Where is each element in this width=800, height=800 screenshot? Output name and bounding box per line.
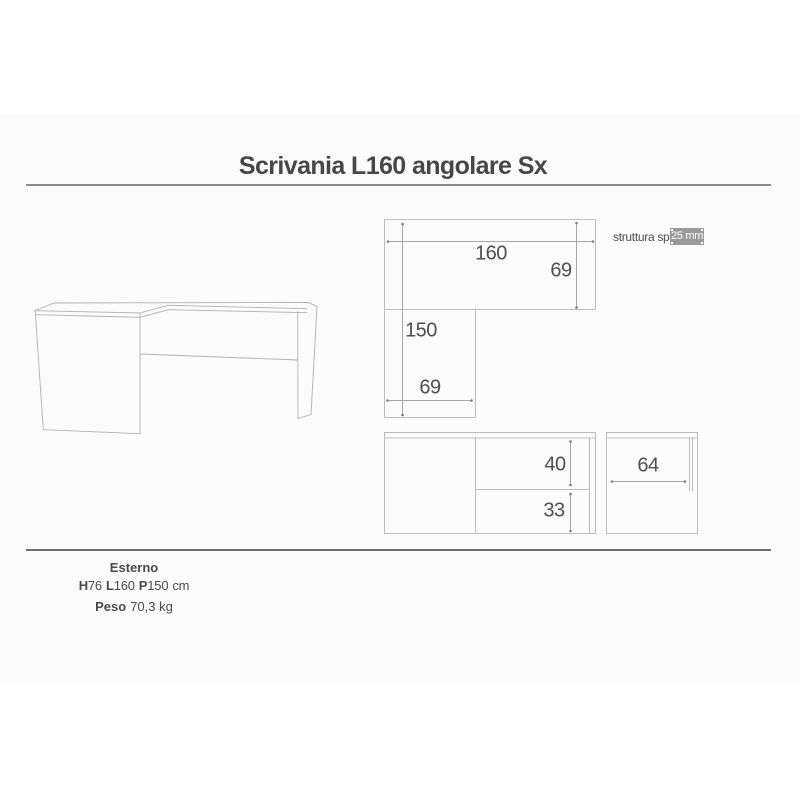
dim-label-return-width: 69: [419, 377, 440, 400]
structure-thickness-value-box: 25 mm: [670, 228, 704, 245]
specs-heading: Esterno: [34, 560, 234, 575]
specs-block: Esterno H76L160P150cm Peso70,3 kg: [34, 560, 234, 614]
weight-label: Peso: [95, 599, 126, 614]
weight-value: 70,3 kg: [130, 599, 173, 614]
side-view-drawing: [607, 433, 698, 534]
dim-label-side-depth: 64: [637, 455, 658, 478]
dim-label-front-lower: 33: [543, 500, 564, 523]
dim-label-return-length: 150: [405, 320, 437, 343]
technical-drawings: [0, 0, 800, 800]
desk-3d-drawing: [35, 303, 317, 434]
external-dimensions-line: H76L160P150cm: [34, 578, 234, 593]
length-label: L: [106, 578, 114, 593]
size-unit: cm: [172, 578, 189, 593]
dim-label-front-upper: 40: [544, 454, 565, 477]
dim-label-plan-depth: 69: [550, 260, 571, 283]
weight-line: Peso70,3 kg: [34, 599, 234, 614]
modesty-rail-line: [140, 354, 298, 360]
product-sheet-page: Scrivania L160 angolare Sx: [0, 0, 800, 800]
specs-separator-line: [26, 549, 771, 551]
dim-label-plan-width: 160: [475, 243, 507, 266]
height-label: H: [79, 578, 88, 593]
structure-thickness-label: struttura sp.: [613, 230, 672, 244]
depth-value: 150: [147, 578, 168, 593]
depth-label: P: [139, 578, 147, 593]
height-value: 76: [88, 578, 102, 593]
length-value: 160: [114, 578, 135, 593]
